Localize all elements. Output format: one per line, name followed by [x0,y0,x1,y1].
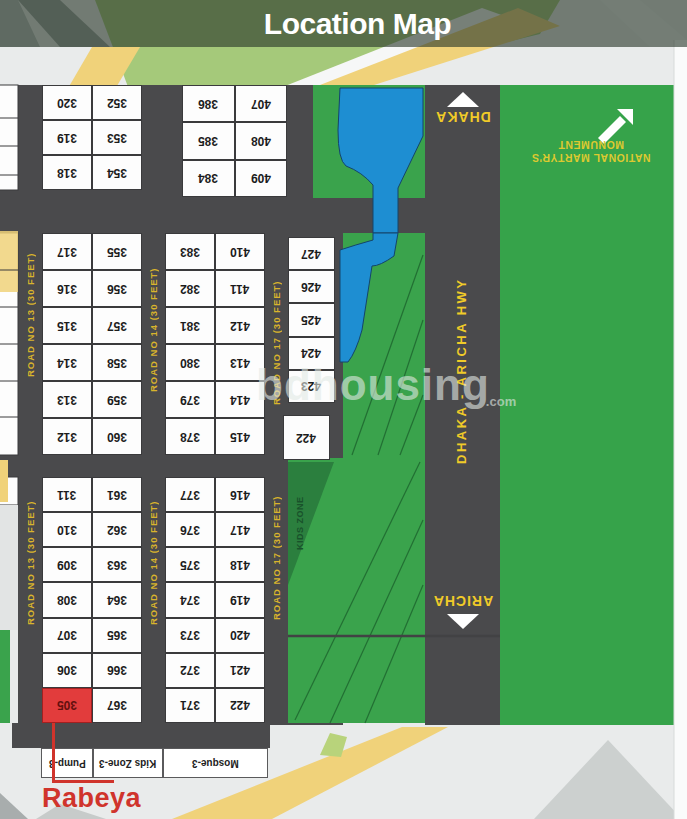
plot-number: 384 [198,171,218,185]
plot-number: 309 [57,558,77,572]
road-stub-top [0,190,18,233]
plot-number: 386 [198,97,218,111]
plot-number: 305 [57,698,77,712]
plot-cell: 375 [165,547,215,582]
plot-number: 409 [251,171,271,185]
plot-cell: 364 [92,582,142,617]
plot-number: 422 [230,698,250,712]
plot-cell: 385 [182,122,235,159]
plot-number: 316 [57,282,77,296]
plot-number: 359 [107,393,127,407]
plot-number: 380 [180,356,200,370]
plot-number: 414 [230,393,250,407]
plot-cell: 383 [165,233,215,270]
location-map-page: Location Map ROAD NO 13 (30 FEET) ROAD N… [0,0,687,819]
plot-number: 320 [57,96,77,110]
plot-number: 408 [251,134,271,148]
plot-cell: 374 [165,582,215,617]
plot-number: 357 [107,319,127,333]
facility-cell-kids-zone-3: Kids Zone-3 [93,748,163,778]
plot-number: 427 [301,247,321,261]
plot-cell: 416 [215,477,265,512]
plot-number: 407 [251,97,271,111]
plot-cell: 379 [165,381,215,418]
plot-cell: 380 [165,344,215,381]
plot-number: 377 [180,488,200,502]
plot-number: 419 [230,593,250,607]
plot-number: 382 [180,282,200,296]
plot-cell: 311 [42,477,92,512]
plot-number: 361 [107,488,127,502]
plot-number: 314 [57,356,77,370]
plot-cell: 312 [42,418,92,455]
plot-cell: 357 [92,307,142,344]
plot-number: 352 [107,96,127,110]
plot-number: 308 [57,593,77,607]
plot-cell: 317 [42,233,92,270]
plot-cell: 424 [288,337,335,370]
plot-cell: 354 [92,155,142,190]
road-13-label-upper: ROAD NO 13 (30 FEET) [18,240,42,390]
plot-number: 422 [296,431,316,445]
plot-cell: 359 [92,381,142,418]
dhaka-label: DHAKA [430,109,496,125]
plot-number: 421 [230,663,250,677]
aricha-direction-arrow [447,614,479,629]
highway-name-label: DHAKA - ARICHA HWY [444,268,478,473]
plot-cell: 413 [215,344,265,381]
road-13-label-lower: ROAD NO 13 (30 FEET) [18,485,42,640]
plot-cell: 408 [235,122,288,159]
plot-number: 379 [180,393,200,407]
dhaka-direction-arrow [447,92,479,107]
plot-cell: 409 [235,160,288,197]
plot-cell: 360 [92,418,142,455]
plot-cell: 316 [42,270,92,307]
plot-number: 413 [230,356,250,370]
plot-cell: 320 [42,85,92,120]
plot-number: 412 [230,319,250,333]
plot-number: 373 [180,628,200,642]
plot-number: 311 [57,488,76,502]
plot-number: 365 [107,628,127,642]
plot-number: 354 [107,166,127,180]
plot-number: 411 [230,282,249,296]
plot-cell: 319 [42,120,92,155]
title-bar: Location Map [0,0,687,47]
plot-cell: 318 [42,155,92,190]
plot-cell: 314 [42,344,92,381]
plot-cell: 376 [165,512,215,547]
plot-number: 418 [230,558,250,572]
plot-cell: 411 [215,270,265,307]
plot-cell: 362 [92,512,142,547]
plot-cell: 363 [92,547,142,582]
plot-cell: 422 [215,688,265,723]
plot-cell: 306 [42,653,92,688]
plot-cell: 425 [288,303,335,336]
plot-cell: 355 [92,233,142,270]
plot-number: 424 [301,346,321,360]
plot-cell: 310 [42,512,92,547]
monument-label-line1: NATIONAL MARTYR'S [505,151,677,164]
plot-cell: 420 [215,618,265,653]
plot-cell: 365 [92,618,142,653]
plot-cell: 419 [215,582,265,617]
plot-cell: 410 [215,233,265,270]
plot-number: 383 [180,245,200,259]
plot-number: 355 [107,245,127,259]
plot-number: 378 [180,430,200,444]
road-14-label-lower: ROAD NO 14 (30 FEET) [142,485,165,640]
plot-cell: 309 [42,547,92,582]
plot-cell: 353 [92,120,142,155]
plot-cell: 372 [165,653,215,688]
plot-number: 362 [107,523,127,537]
plot-number: 364 [107,593,127,607]
plot-cell: 384 [182,160,235,197]
plot-number: 372 [180,663,200,677]
plot-number: 366 [107,663,127,677]
plot-cell: 361 [92,477,142,512]
plot-cell: 412 [215,307,265,344]
plot-number: 307 [57,628,77,642]
plot-number: 425 [301,313,321,327]
plot-cell: 377 [165,477,215,512]
plot-cell: 308 [42,582,92,617]
plot-cell: 378 [165,418,215,455]
plot-cell: 307 [42,618,92,653]
plot-cell: 382 [165,270,215,307]
left-partial-plots [0,85,18,723]
plot-cell: 415 [215,418,265,455]
plot-number: 416 [230,488,250,502]
plot-cell-highlighted: 305 [42,688,92,723]
road-14-label-upper: ROAD NO 14 (30 FEET) [142,255,165,405]
plot-number: 353 [107,131,127,145]
plot-number: 417 [230,523,250,537]
plot-number: 426 [301,280,321,294]
plot-cell: 358 [92,344,142,381]
plot-number: 376 [180,523,200,537]
plot-cell: 371 [165,688,215,723]
plot-number: 319 [57,131,77,145]
facility-label: Mosque-3 [192,758,239,769]
highlight-owner-label: Rabeya [42,783,141,814]
monument-label-line2: MONUMENT [505,138,677,151]
plot-number: 375 [180,558,200,572]
plot-number: 315 [57,319,77,333]
road-17-label-upper: ROAD NO 17 (30 FEET) [265,268,288,418]
road-bottom [12,723,270,748]
facility-cell-pump-3: Pump-3 [41,748,93,778]
plot-number: 312 [57,430,77,444]
plot-number: 317 [57,245,77,259]
plot-number: 410 [230,245,250,259]
plot-number: 367 [107,698,127,712]
plot-number: 381 [180,319,200,333]
plot-cell: 422 [283,415,330,460]
plot-number: 374 [180,593,200,607]
plot-cell: 367 [92,688,142,723]
plot-cell: 414 [215,381,265,418]
monument-label: NATIONAL MARTYR'S MONUMENT [505,138,677,164]
plot-number: 318 [57,166,77,180]
facility-cell-mosque-3: Mosque-3 [163,748,268,778]
plot-cell: 366 [92,653,142,688]
plot-cell: 313 [42,381,92,418]
plot-cell: 386 [182,85,235,122]
plot-cell: 381 [165,307,215,344]
plot-cell: 373 [165,618,215,653]
plot-number: 371 [180,698,200,712]
plot-number: 356 [107,282,127,296]
plot-number: 415 [230,430,250,444]
plot-cell: 356 [92,270,142,307]
plot-cell: 417 [215,512,265,547]
aricha-label: ARICHA [430,593,496,609]
plot-cell: 407 [235,85,288,122]
plot-cell: 427 [288,237,335,270]
plot-cell: 423 [288,370,335,403]
plot-number: 360 [107,430,127,444]
plot-number: 313 [57,393,77,407]
plot-cell: 315 [42,307,92,344]
plot-number: 358 [107,356,127,370]
plot-number: 423 [301,379,321,393]
plot-cell: 352 [92,85,142,120]
road-17-label-lower: ROAD NO 17 (30 FEET) [265,480,288,635]
monument-green [500,85,674,725]
plot-number: 385 [198,134,218,148]
highlight-connector-vertical [52,723,55,782]
plot-cell: 418 [215,547,265,582]
plot-number: 420 [230,628,250,642]
plot-number: 363 [107,558,127,572]
kids-zone-label: KIDS ZONE [290,486,310,560]
plot-number: 310 [57,523,77,537]
plot-cell: 426 [288,270,335,303]
plot-number: 306 [57,663,77,677]
plot-cell: 421 [215,653,265,688]
page-title: Location Map [264,7,451,41]
facility-label: Kids Zone-3 [99,758,156,769]
